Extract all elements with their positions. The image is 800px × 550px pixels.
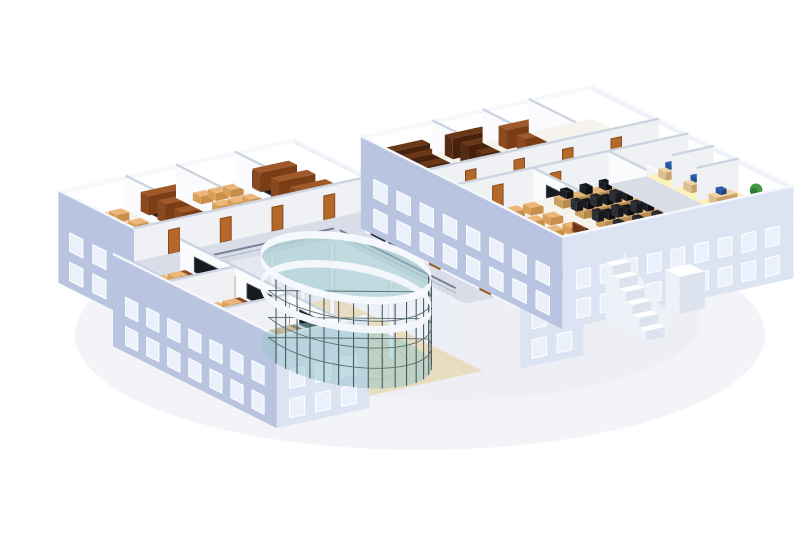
entrance-porch	[665, 264, 705, 314]
isometric-building-cutaway	[0, 0, 800, 550]
building-rendering-stage	[0, 0, 800, 550]
